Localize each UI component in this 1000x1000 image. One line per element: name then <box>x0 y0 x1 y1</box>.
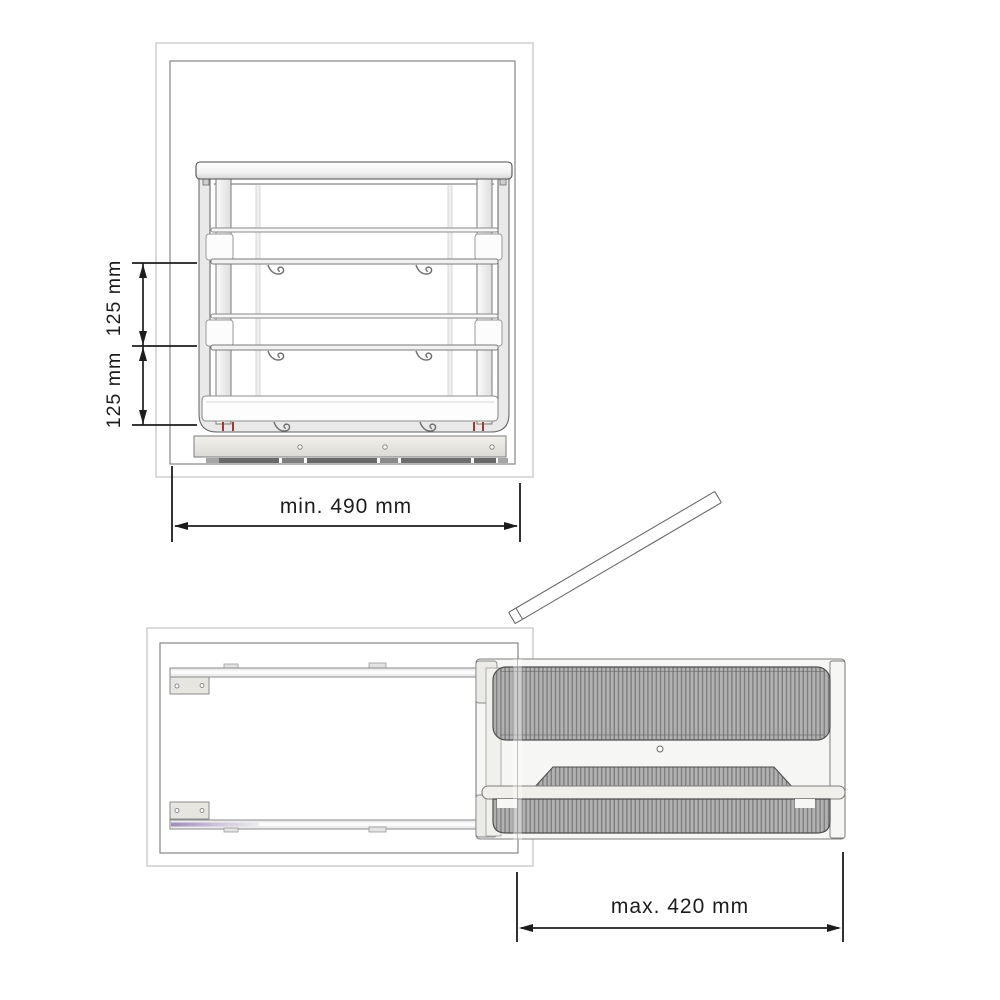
hanger-hook-icon <box>268 351 284 360</box>
screw-hole <box>200 809 204 813</box>
shelf-side-panel-left <box>206 234 233 260</box>
ribbed-shelf-top <box>493 667 830 740</box>
shelf-rail <box>211 259 498 264</box>
arrowhead-left-icon <box>174 522 188 530</box>
rack-rear-post-right <box>448 184 452 420</box>
arrowhead-down-icon <box>139 410 147 424</box>
rack-side-frame-tube <box>199 168 509 432</box>
arrowhead-up-icon <box>139 347 147 361</box>
rail-clip <box>224 828 238 832</box>
shelf-side-panel-right <box>475 234 502 260</box>
technical-drawing-page: 125 mm 125 mm min. 490 mm <box>0 0 1000 1000</box>
open-door <box>509 491 722 623</box>
screw-hole <box>383 445 387 449</box>
rack-front-post-right <box>477 178 492 424</box>
dimension-label-125mm-upper: 125 mm <box>103 260 125 336</box>
arrowhead-up-icon <box>139 264 147 278</box>
screw-hole <box>490 445 494 449</box>
dimension-label-min-490mm: min. 490 mm <box>280 495 412 518</box>
unit-right-frame-bar <box>830 661 845 838</box>
top-plan-view: max. 420 mm <box>147 491 845 942</box>
dimension-label-max-420mm: max. 420 mm <box>611 895 749 918</box>
arrowhead-left-icon <box>519 924 533 932</box>
bottom-tray <box>202 396 498 421</box>
arrowhead-right-icon <box>504 522 518 530</box>
hanger-hook-icon <box>416 351 432 360</box>
shelf-level-1 <box>206 228 502 274</box>
slide-rail-bottom <box>170 820 482 832</box>
shelf-side-panel-left <box>206 320 233 346</box>
arrowhead-down-icon <box>139 331 147 345</box>
mounting-bracket-bottom <box>170 802 209 819</box>
pullout-shoe-rack-unit <box>476 659 845 840</box>
hanger-hook-icon <box>268 265 284 274</box>
screw-hole <box>175 809 179 813</box>
front-elevation-view: 125 mm 125 mm min. 490 mm <box>103 43 533 542</box>
shelf-level-2 <box>206 314 502 360</box>
door-panel <box>509 491 722 623</box>
ribbed-shelf-bottom <box>493 799 830 833</box>
drawing-canvas: 125 mm 125 mm min. 490 mm <box>0 0 1000 1000</box>
cabinet-outer-panel-outline <box>147 628 533 866</box>
front-rail-bar <box>482 786 845 799</box>
dimension-max-extension: max. 420 mm <box>517 852 843 942</box>
shelf-rail <box>211 314 498 318</box>
shelf-rail <box>211 345 498 350</box>
dimension-shelf-spacing: 125 mm 125 mm <box>103 260 197 428</box>
ribbed-shelf-notch <box>795 799 815 808</box>
rail-clip <box>369 827 386 832</box>
screw-hole <box>175 684 179 688</box>
arrowhead-right-icon <box>827 924 841 932</box>
shelf-rail <box>211 228 498 232</box>
shelf-side-panel-right <box>475 320 502 346</box>
screw-hole <box>657 746 663 752</box>
rail-damper-accent <box>171 823 259 827</box>
mounting-bracket-top <box>170 677 209 694</box>
slide-rail-top <box>170 663 482 677</box>
rail-highlight <box>171 671 481 675</box>
screw-hole <box>200 684 204 688</box>
rack-rear-post-left <box>256 184 260 420</box>
base-plate <box>194 436 506 457</box>
screw-hole <box>298 445 302 449</box>
base-feet <box>206 458 508 463</box>
dimension-label-125mm-lower: 125 mm <box>103 352 125 428</box>
rack-front-post-left <box>216 178 231 424</box>
hanger-hook-icon <box>416 265 432 274</box>
rack-top-rail <box>196 162 512 179</box>
